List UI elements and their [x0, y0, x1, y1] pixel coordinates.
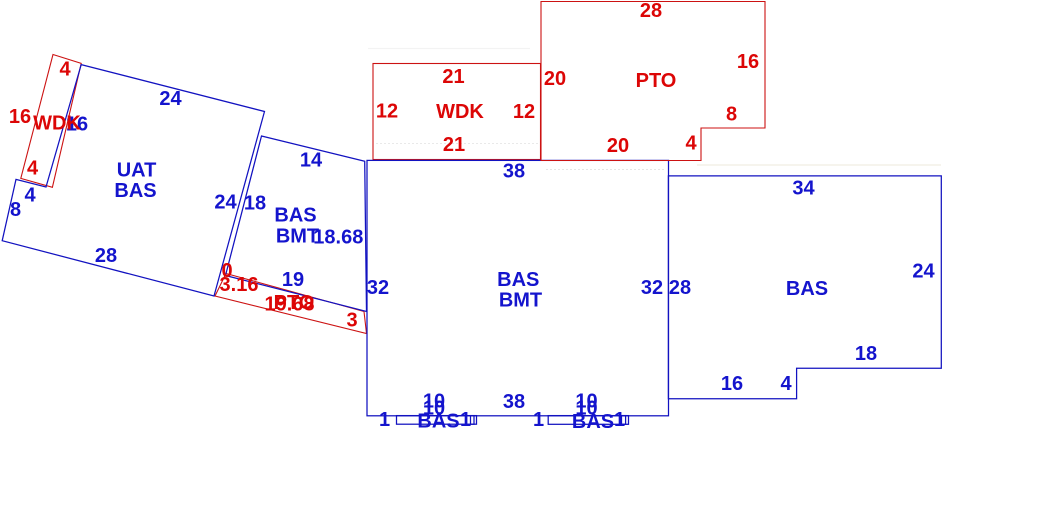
svg-text:BAS: BAS: [417, 411, 459, 433]
svg-text:BAS: BAS: [786, 278, 828, 300]
svg-text:3.16: 3.16: [220, 274, 259, 296]
svg-text:20: 20: [544, 68, 566, 90]
svg-text:BMT: BMT: [499, 289, 542, 311]
svg-text:14: 14: [300, 150, 323, 172]
svg-text:16: 16: [9, 106, 31, 128]
svg-text:32: 32: [367, 277, 389, 299]
svg-text:1: 1: [614, 409, 625, 431]
svg-text:PTO: PTO: [636, 70, 677, 92]
svg-text:28: 28: [95, 245, 117, 267]
svg-text:18.68: 18.68: [313, 227, 363, 249]
svg-text:20: 20: [607, 135, 629, 157]
svg-text:18: 18: [244, 193, 266, 215]
svg-text:32: 32: [641, 277, 663, 299]
svg-text:3: 3: [346, 310, 357, 332]
svg-text:8: 8: [10, 199, 21, 221]
svg-text:34: 34: [792, 178, 815, 200]
svg-text:12: 12: [376, 101, 398, 123]
svg-text:28: 28: [669, 277, 691, 299]
svg-text:4: 4: [780, 373, 792, 395]
svg-text:BAS: BAS: [572, 411, 614, 433]
svg-text:38: 38: [503, 161, 525, 183]
svg-text:WDK: WDK: [436, 101, 484, 123]
svg-text:WDK: WDK: [33, 113, 81, 135]
svg-text:21: 21: [442, 66, 464, 88]
svg-text:BAS: BAS: [114, 180, 156, 202]
svg-text:4: 4: [685, 133, 697, 155]
svg-text:16: 16: [721, 373, 743, 395]
svg-text:4: 4: [27, 158, 39, 180]
svg-text:1: 1: [533, 409, 544, 431]
svg-text:16: 16: [737, 51, 759, 73]
svg-text:24: 24: [912, 261, 935, 283]
svg-text:19.68: 19.68: [264, 294, 314, 316]
svg-text:UAT: UAT: [117, 160, 157, 182]
svg-text:24: 24: [159, 88, 182, 110]
svg-text:38: 38: [503, 391, 525, 413]
svg-text:BAS: BAS: [274, 205, 316, 227]
svg-text:21: 21: [443, 134, 465, 156]
svg-text:24: 24: [214, 192, 237, 214]
svg-text:28: 28: [640, 0, 662, 22]
svg-text:4: 4: [59, 59, 71, 81]
svg-text:1: 1: [379, 409, 390, 431]
svg-text:18: 18: [855, 343, 877, 365]
svg-text:12: 12: [513, 101, 535, 123]
svg-text:BAS: BAS: [497, 269, 539, 291]
svg-text:1: 1: [460, 409, 471, 431]
svg-text:19: 19: [282, 269, 304, 291]
svg-text:8: 8: [726, 104, 737, 126]
svg-text:4: 4: [24, 185, 36, 207]
